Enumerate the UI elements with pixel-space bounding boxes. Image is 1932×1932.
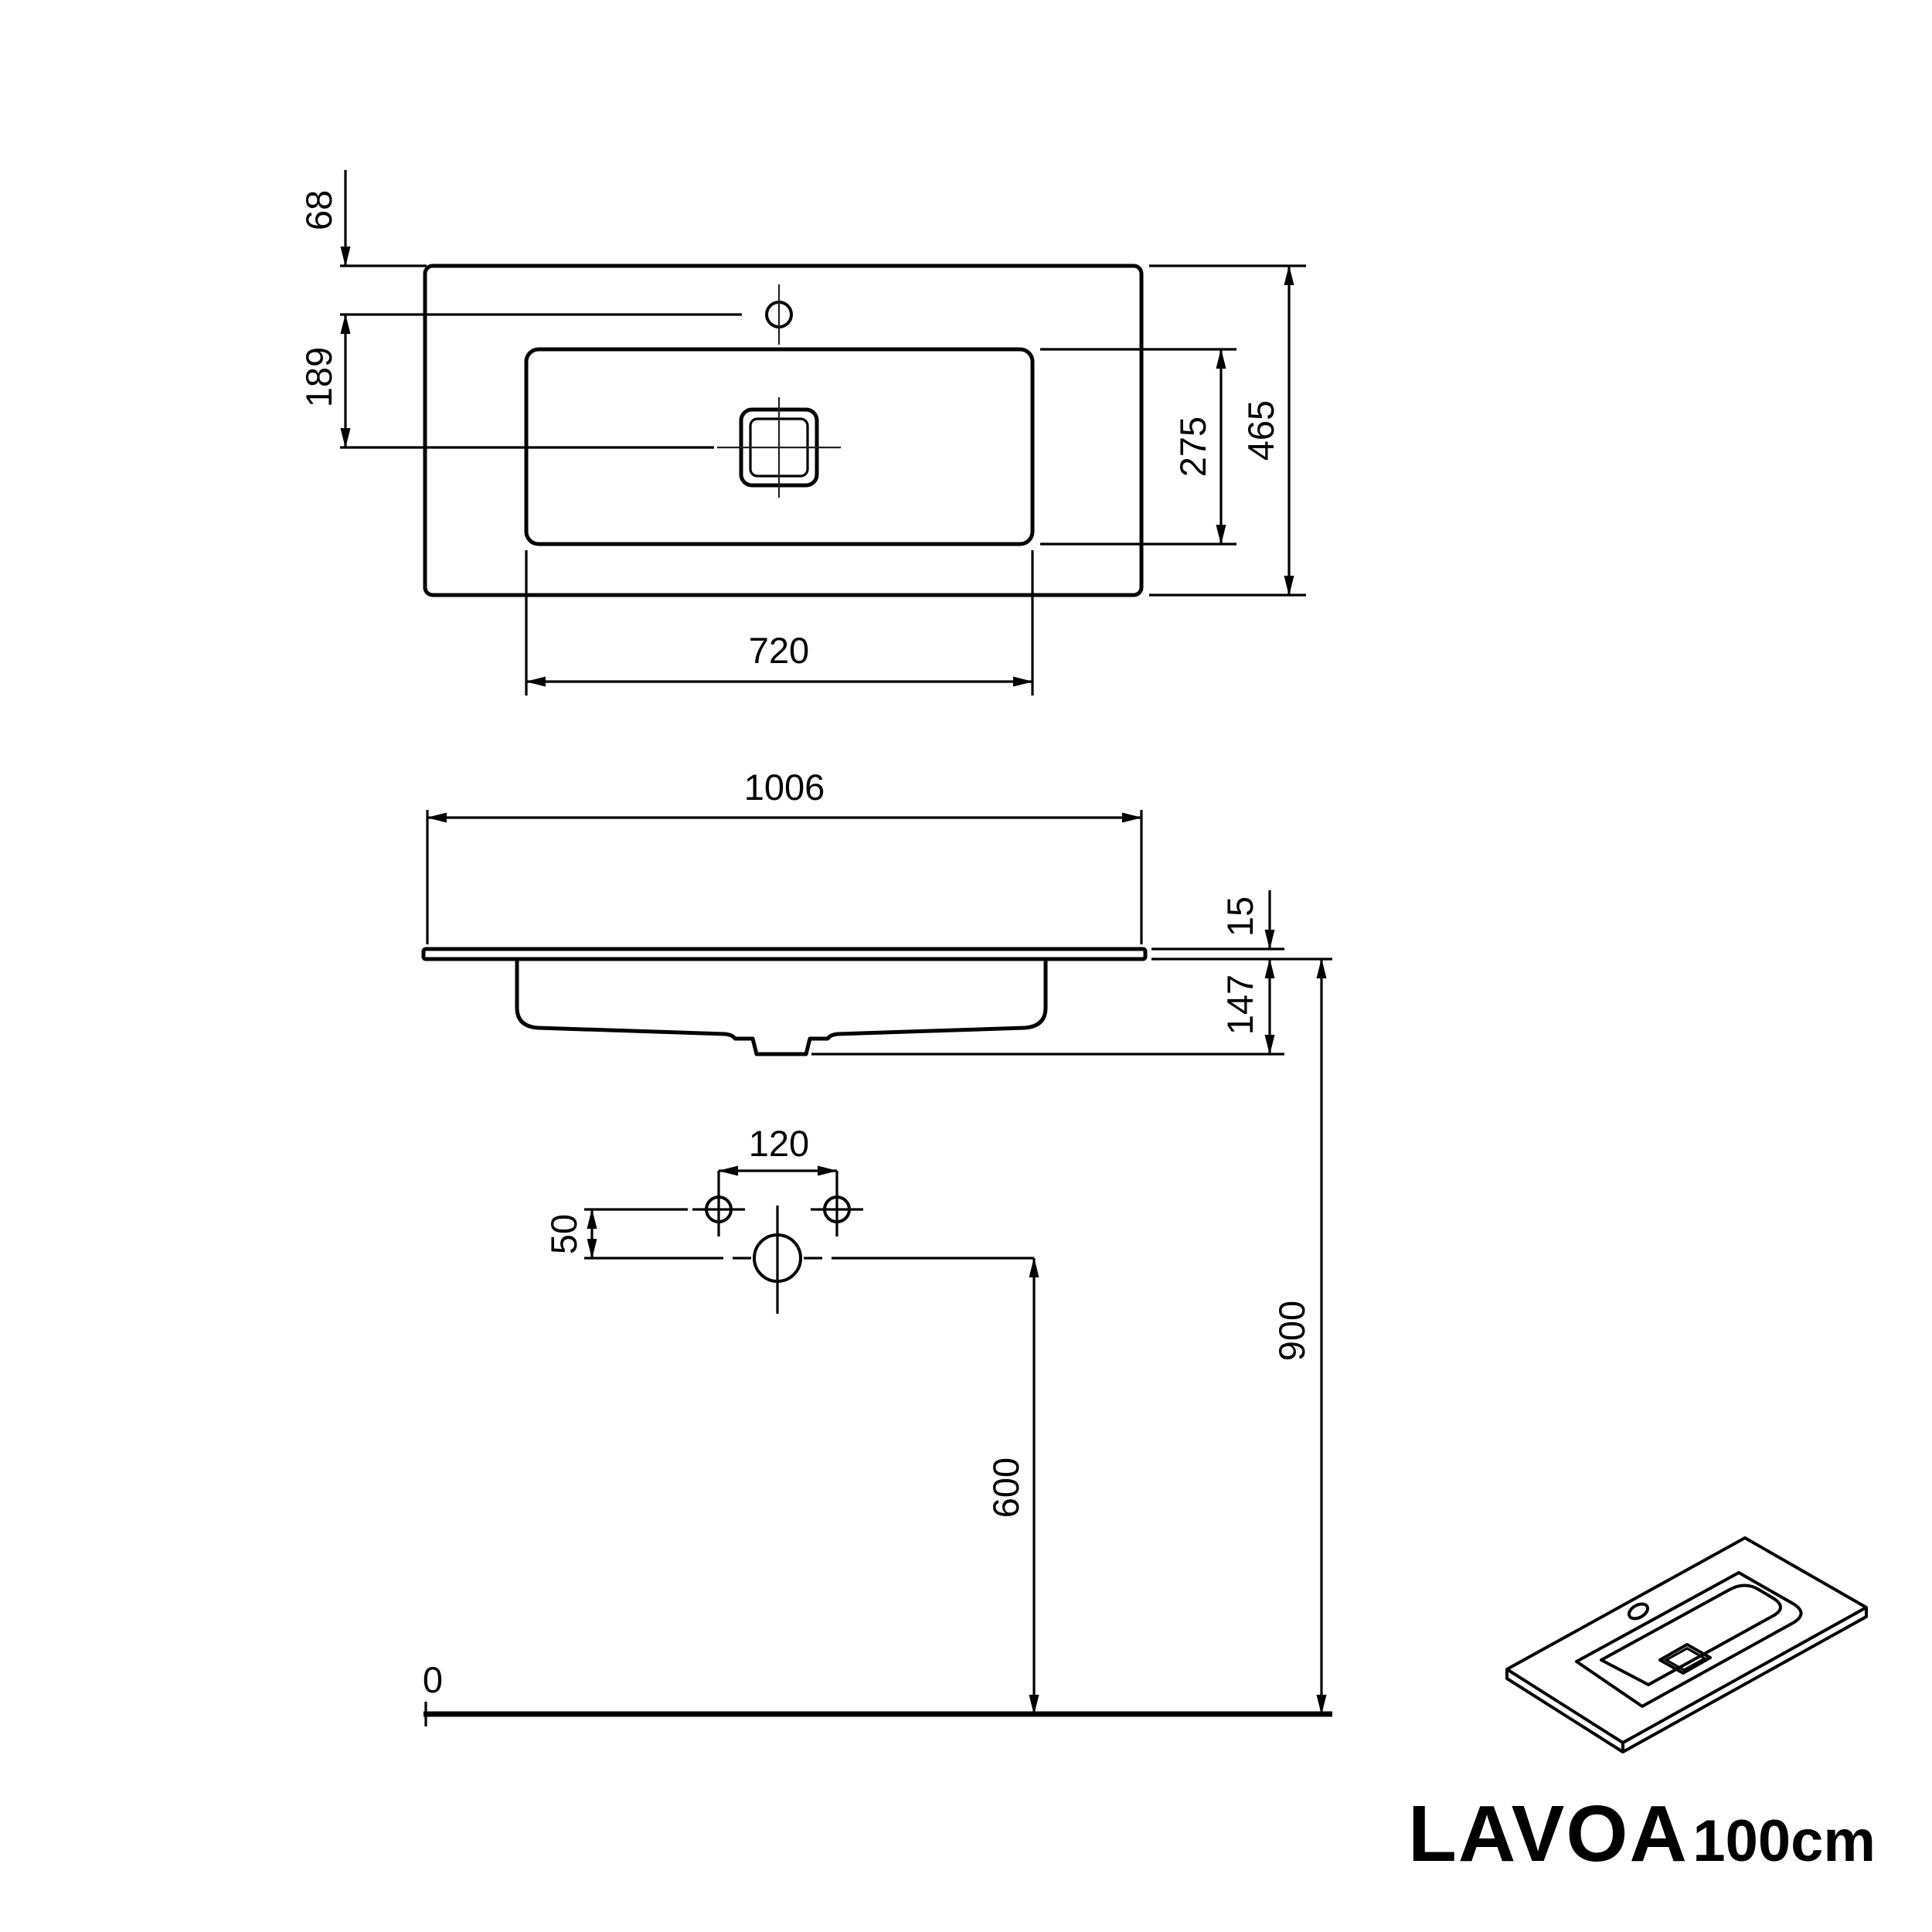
dim-label-bowl-depth: 147	[1219, 975, 1260, 1035]
countertop-slab	[423, 949, 1145, 959]
washbasin-dimension-drawing: 68 189 275 465 720 1006 1	[0, 0, 1932, 1932]
top-view: 68 189 275 465 720	[298, 170, 1306, 696]
front-view: 1006 15 147	[423, 767, 1332, 1054]
dim-label-slab-thickness: 15	[1219, 896, 1260, 937]
isometric-icon	[1507, 1538, 1866, 1752]
iso-basin-rim	[1577, 1573, 1801, 1706]
dim-label-basin-depth: 275	[1172, 417, 1213, 477]
floor-level-label: 0	[423, 1659, 443, 1700]
product-title: LAVOA 100cm	[1408, 1789, 1876, 1878]
iso-faucet-hole	[1627, 1601, 1650, 1622]
installation-view: 120 50 600 900 0	[423, 959, 1332, 1726]
product-variant: 100cm	[1692, 1808, 1876, 1874]
dim-label-basin-width: 720	[749, 630, 809, 671]
bowl-profile	[517, 959, 1046, 1054]
dim-label-overall-depth: 465	[1240, 400, 1281, 461]
dim-label-hole-spacing: 120	[749, 1123, 809, 1164]
iso-countertop-edge	[1507, 1607, 1866, 1752]
dim-label-overall-width: 1006	[744, 767, 825, 808]
dim-label-drain-height: 600	[985, 1458, 1026, 1518]
dim-label-mounting-height: 900	[1271, 1301, 1312, 1361]
technical-drawing-page: 68 189 275 465 720 1006 1	[0, 0, 1932, 1932]
product-name: LAVOA	[1408, 1789, 1689, 1878]
dim-label-faucet-offset: 68	[298, 190, 339, 230]
dim-label-faucet-to-drain: 189	[298, 347, 339, 407]
dim-label-hole-offset: 50	[543, 1214, 584, 1254]
